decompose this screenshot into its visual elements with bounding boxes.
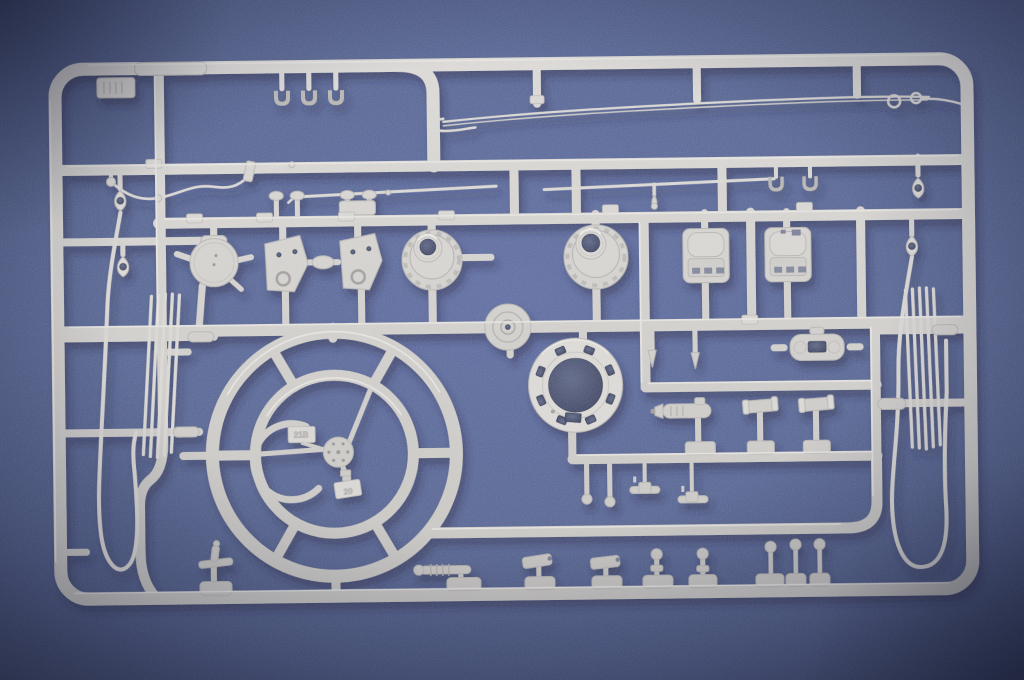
photo-stage: 21B 20 [0,0,1024,680]
sprue-photo: 21B 20 [0,0,1024,680]
film-grain [0,0,1024,680]
